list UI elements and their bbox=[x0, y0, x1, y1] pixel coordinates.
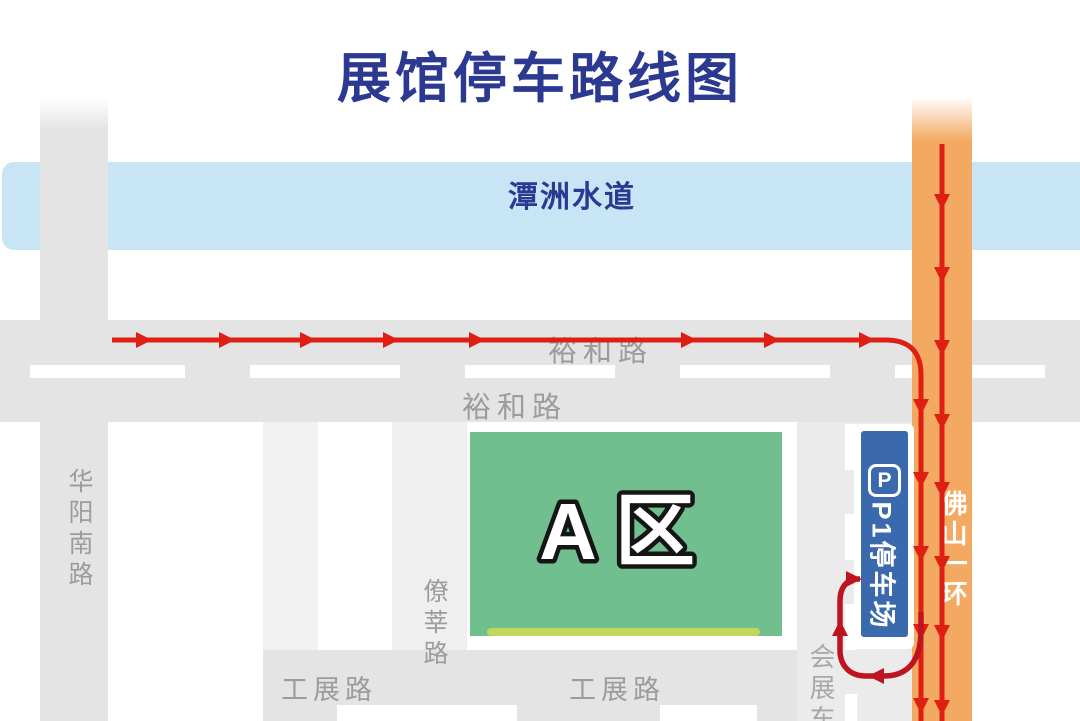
huizhan-east-road-label: 会展东 bbox=[803, 643, 840, 721]
parking-route-map: A区 P P1停车场 展馆停车路线图 潭洲水道 裕和路 裕和路 华阳南路 僚莘路… bbox=[0, 0, 1080, 721]
liaoxin-road-label: 僚莘路 bbox=[416, 578, 452, 671]
gongzhan-road-label-west: 工展路 bbox=[281, 668, 377, 707]
foshan-ring-road bbox=[912, 97, 972, 721]
gongzhan-road-lane-dash bbox=[660, 705, 757, 721]
yuhe-road-label-lower: 裕和路 bbox=[462, 384, 567, 426]
parking-icon: P bbox=[868, 464, 901, 497]
yuhe-road-label-upper: 裕和路 bbox=[548, 328, 653, 370]
foshan-ring-road-label: 佛山一环 bbox=[935, 490, 972, 610]
page-title: 展馆停车路线图 bbox=[0, 34, 1080, 113]
parking-badge-label: P1停车场 bbox=[865, 501, 904, 630]
area-a-label: A区 bbox=[470, 432, 782, 636]
svg-text:A区: A区 bbox=[539, 487, 713, 576]
gongzhan-road-label-east: 工展路 bbox=[569, 668, 665, 707]
waterway-label: 潭洲水道 bbox=[508, 172, 636, 216]
huayang-south-road-label: 华阳南路 bbox=[61, 468, 97, 592]
gongzhan-road-lane-dash bbox=[337, 705, 517, 721]
